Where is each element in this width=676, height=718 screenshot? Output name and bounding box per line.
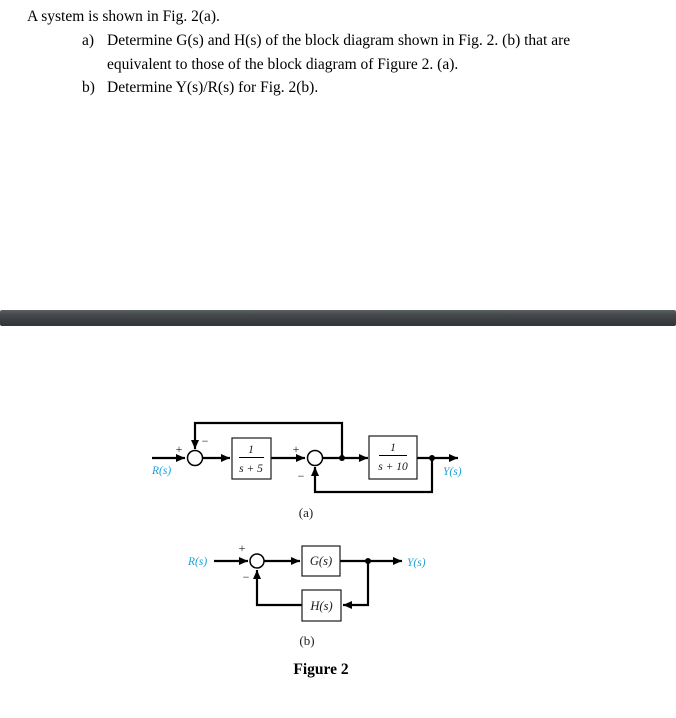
problem-item-a-line1: a)Determine G(s) and H(s) of the block d… [82,31,570,50]
problem-item-b: b)Determine Y(s)/R(s) for Fig. 2(b). [82,78,318,97]
pickoff-dot-bottom [429,455,435,461]
input-signal-label-b: R(s) [187,556,207,568]
caption-a: (a) [284,505,328,521]
item-a-marker: a) [82,31,107,50]
pickoff-dot-b [365,558,371,564]
sum1-plus-sign: + [176,442,183,456]
block1-denominator: s + 5 [239,463,263,475]
block1-numerator: 1 [248,444,254,456]
input-signal-label-a: R(s) [151,465,171,477]
output-signal-label-a: Y(s) [443,466,462,478]
sum-minus-sign-b: − [243,570,250,584]
forward-block-label: G(s) [310,554,332,568]
sum2-minus-sign: − [298,469,305,483]
summing-junction-1 [188,451,203,466]
pickoff-dot-top [339,455,345,461]
summing-junction-b [250,554,264,568]
figure-caption: Figure 2 [246,661,396,679]
item-a-text-line1: Determine G(s) and H(s) of the block dia… [107,32,570,49]
summing-junction-2 [308,451,323,466]
sum-plus-sign-b: + [239,541,246,555]
sum1-minus-sign: − [202,434,209,448]
item-b-marker: b) [82,78,107,97]
item-b-text: Determine Y(s)/R(s) for Fig. 2(b). [107,79,318,96]
output-signal-label-b: Y(s) [407,557,426,569]
problem-item-a-line2: equivalent to those of the block diagram… [107,55,458,74]
section-divider-bar [0,310,676,326]
caption-b: (b) [285,633,329,649]
block2-denominator: s + 10 [378,461,408,473]
problem-intro: A system is shown in Fig. 2(a). [27,7,220,26]
block2-numerator: 1 [390,442,396,454]
document-page: A system is shown in Fig. 2(a). a)Determ… [0,0,676,718]
sum2-plus-sign: + [293,442,300,456]
feedback-block-label: H(s) [309,599,332,613]
